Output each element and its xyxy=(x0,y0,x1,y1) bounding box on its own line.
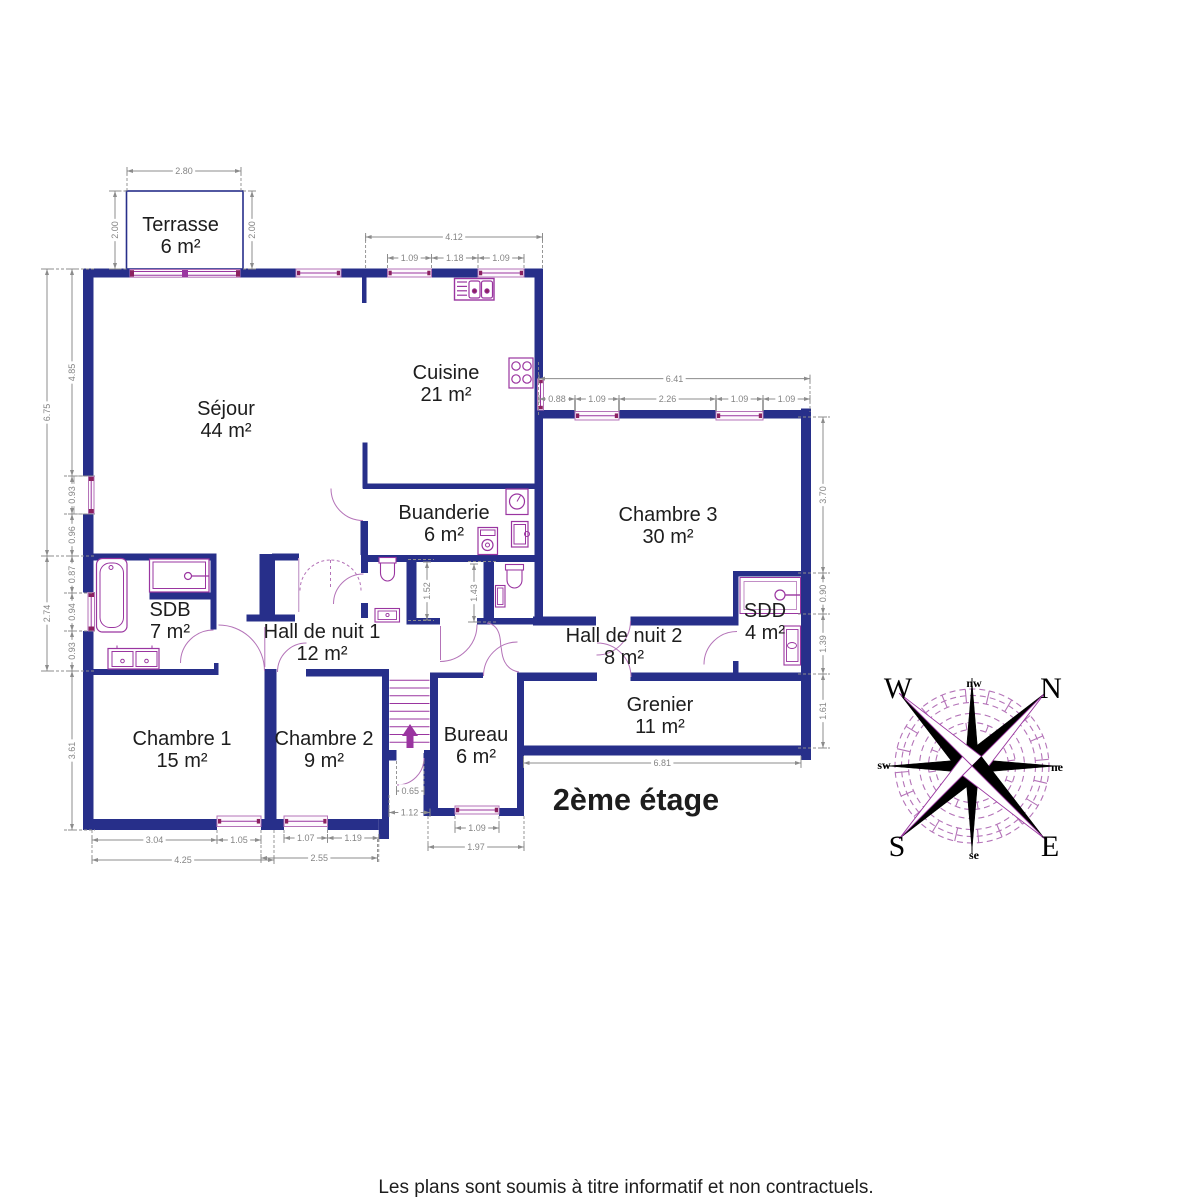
svg-text:44 m²: 44 m² xyxy=(200,420,251,442)
svg-text:6 m²: 6 m² xyxy=(456,746,496,768)
svg-text:0.65: 0.65 xyxy=(401,786,419,796)
svg-text:1.18: 1.18 xyxy=(446,253,464,263)
svg-text:6.41: 6.41 xyxy=(666,374,684,384)
svg-text:1.19: 1.19 xyxy=(344,833,362,843)
svg-text:1.09: 1.09 xyxy=(731,394,749,404)
svg-text:sw: sw xyxy=(877,758,891,772)
svg-text:Séjour: Séjour xyxy=(197,398,255,420)
svg-text:Terrasse: Terrasse xyxy=(142,214,219,236)
svg-text:6 m²: 6 m² xyxy=(424,524,464,546)
svg-text:S: S xyxy=(889,830,906,863)
svg-text:0.93: 0.93 xyxy=(67,486,77,504)
svg-text:15 m²: 15 m² xyxy=(156,750,207,772)
svg-text:1.61: 1.61 xyxy=(818,702,828,720)
svg-text:6.81: 6.81 xyxy=(653,758,671,768)
svg-text:Grenier: Grenier xyxy=(627,694,694,716)
svg-text:12 m²: 12 m² xyxy=(296,643,347,665)
svg-text:0.96: 0.96 xyxy=(67,526,77,544)
svg-text:1.09: 1.09 xyxy=(778,394,796,404)
svg-text:1.39: 1.39 xyxy=(818,635,828,653)
svg-text:1.09: 1.09 xyxy=(492,253,510,263)
svg-text:W: W xyxy=(884,672,913,705)
svg-text:E: E xyxy=(1041,830,1059,863)
svg-text:Chambre 3: Chambre 3 xyxy=(619,504,718,526)
svg-text:0.87: 0.87 xyxy=(67,566,77,584)
svg-text:Buanderie: Buanderie xyxy=(398,502,489,524)
svg-text:2.80: 2.80 xyxy=(175,166,193,176)
svg-text:3.61: 3.61 xyxy=(67,742,77,760)
svg-text:0.88: 0.88 xyxy=(548,394,566,404)
svg-text:2ème étage: 2ème étage xyxy=(553,783,719,817)
svg-text:0.90: 0.90 xyxy=(818,585,828,603)
svg-text:Bureau: Bureau xyxy=(444,724,509,746)
svg-text:2.00: 2.00 xyxy=(110,221,120,239)
svg-text:4.12: 4.12 xyxy=(445,232,463,242)
svg-text:2.55: 2.55 xyxy=(310,853,328,863)
svg-text:8 m²: 8 m² xyxy=(604,647,644,669)
svg-text:1.43: 1.43 xyxy=(469,584,479,602)
svg-text:1.09: 1.09 xyxy=(588,394,606,404)
svg-text:nw: nw xyxy=(966,676,982,690)
svg-text:se: se xyxy=(969,848,980,862)
svg-text:1.97: 1.97 xyxy=(467,842,485,852)
svg-text:SDD: SDD xyxy=(744,600,786,622)
svg-text:1.52: 1.52 xyxy=(422,582,432,600)
svg-text:7 m²: 7 m² xyxy=(150,621,190,643)
svg-text:6.75: 6.75 xyxy=(42,404,52,422)
svg-text:Les plans sont soumis à titre: Les plans sont soumis à titre informatif… xyxy=(378,1177,873,1198)
svg-text:4.85: 4.85 xyxy=(67,364,77,382)
svg-text:0.94: 0.94 xyxy=(67,603,77,621)
svg-text:30 m²: 30 m² xyxy=(642,526,693,548)
svg-text:1.07: 1.07 xyxy=(297,833,315,843)
svg-text:1.12: 1.12 xyxy=(401,808,419,818)
svg-text:2.26: 2.26 xyxy=(659,394,677,404)
svg-text:6 m²: 6 m² xyxy=(161,236,201,258)
svg-text:ne: ne xyxy=(1051,760,1064,774)
svg-text:4.25: 4.25 xyxy=(174,855,192,865)
svg-text:11 m²: 11 m² xyxy=(635,716,685,738)
svg-text:N: N xyxy=(1040,672,1062,705)
svg-text:21 m²: 21 m² xyxy=(420,384,471,406)
svg-text:SDB: SDB xyxy=(149,599,190,621)
svg-text:4 m²: 4 m² xyxy=(745,622,785,644)
svg-text:1.05: 1.05 xyxy=(230,835,248,845)
svg-text:3.70: 3.70 xyxy=(818,486,828,504)
svg-text:1.09: 1.09 xyxy=(401,253,419,263)
svg-text:Hall de nuit 1: Hall de nuit 1 xyxy=(264,621,381,643)
svg-text:2.00: 2.00 xyxy=(247,221,257,239)
svg-text:9 m²: 9 m² xyxy=(304,750,344,772)
svg-text:Chambre 1: Chambre 1 xyxy=(133,728,232,750)
svg-text:Chambre 2: Chambre 2 xyxy=(275,728,374,750)
svg-text:1.09: 1.09 xyxy=(468,823,486,833)
svg-text:Cuisine: Cuisine xyxy=(413,362,480,384)
svg-text:2.74: 2.74 xyxy=(42,605,52,623)
svg-text:0.93: 0.93 xyxy=(67,642,77,660)
svg-text:3.04: 3.04 xyxy=(146,835,164,845)
svg-text:Hall de nuit 2: Hall de nuit 2 xyxy=(566,625,683,647)
